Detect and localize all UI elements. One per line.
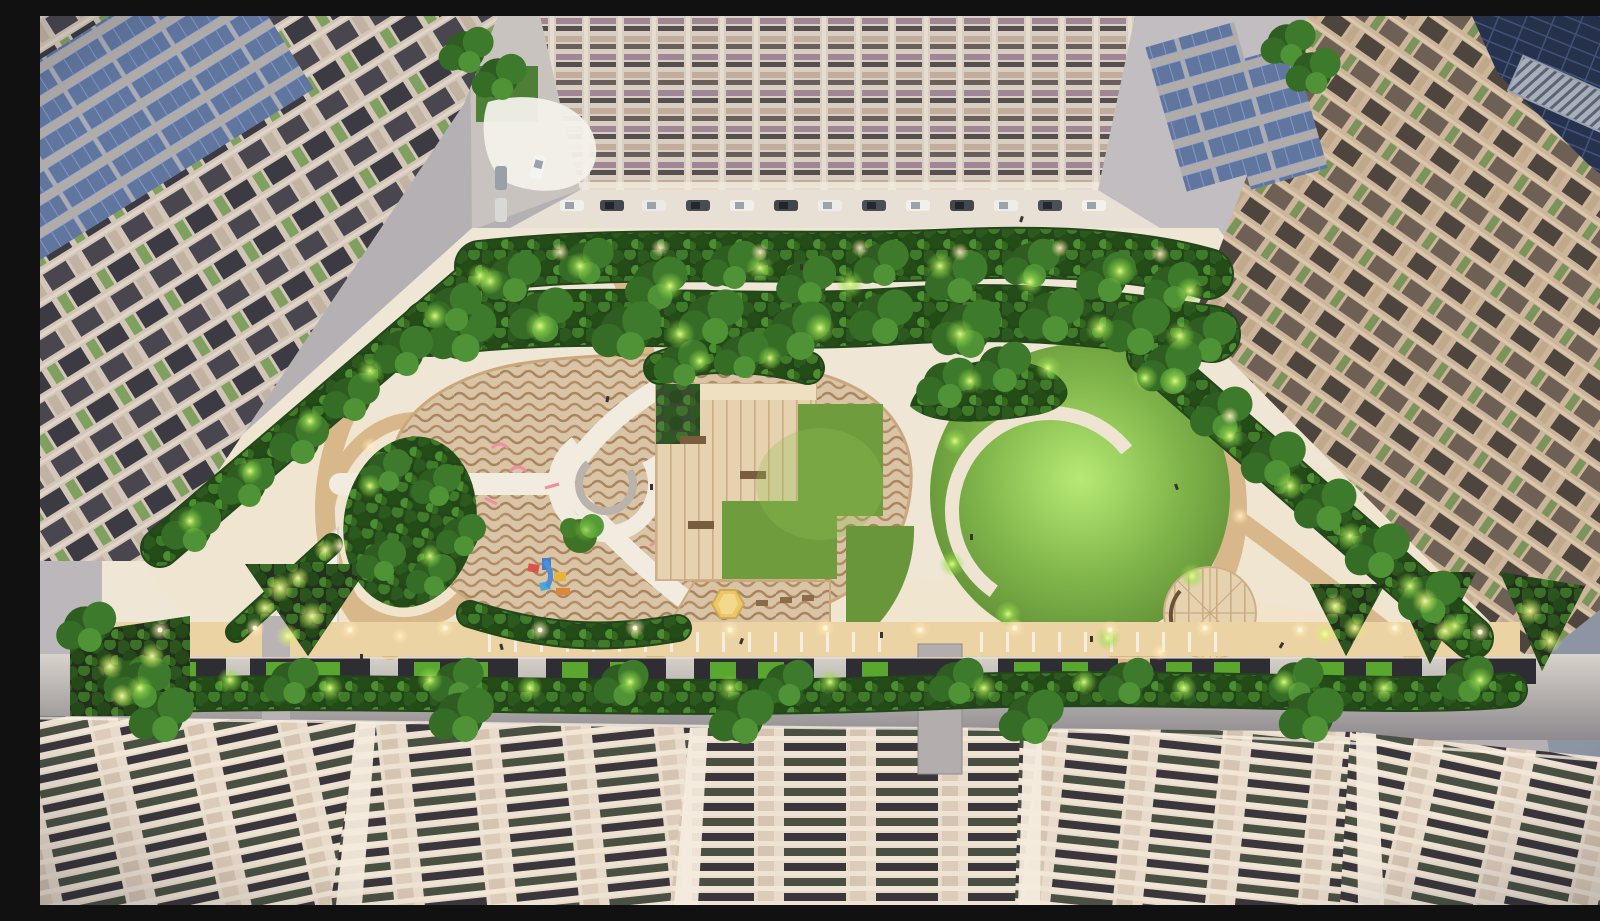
vignette-overlay [40,16,1600,905]
aerial-courtyard-render [40,16,1600,905]
render-canvas [40,16,1600,905]
